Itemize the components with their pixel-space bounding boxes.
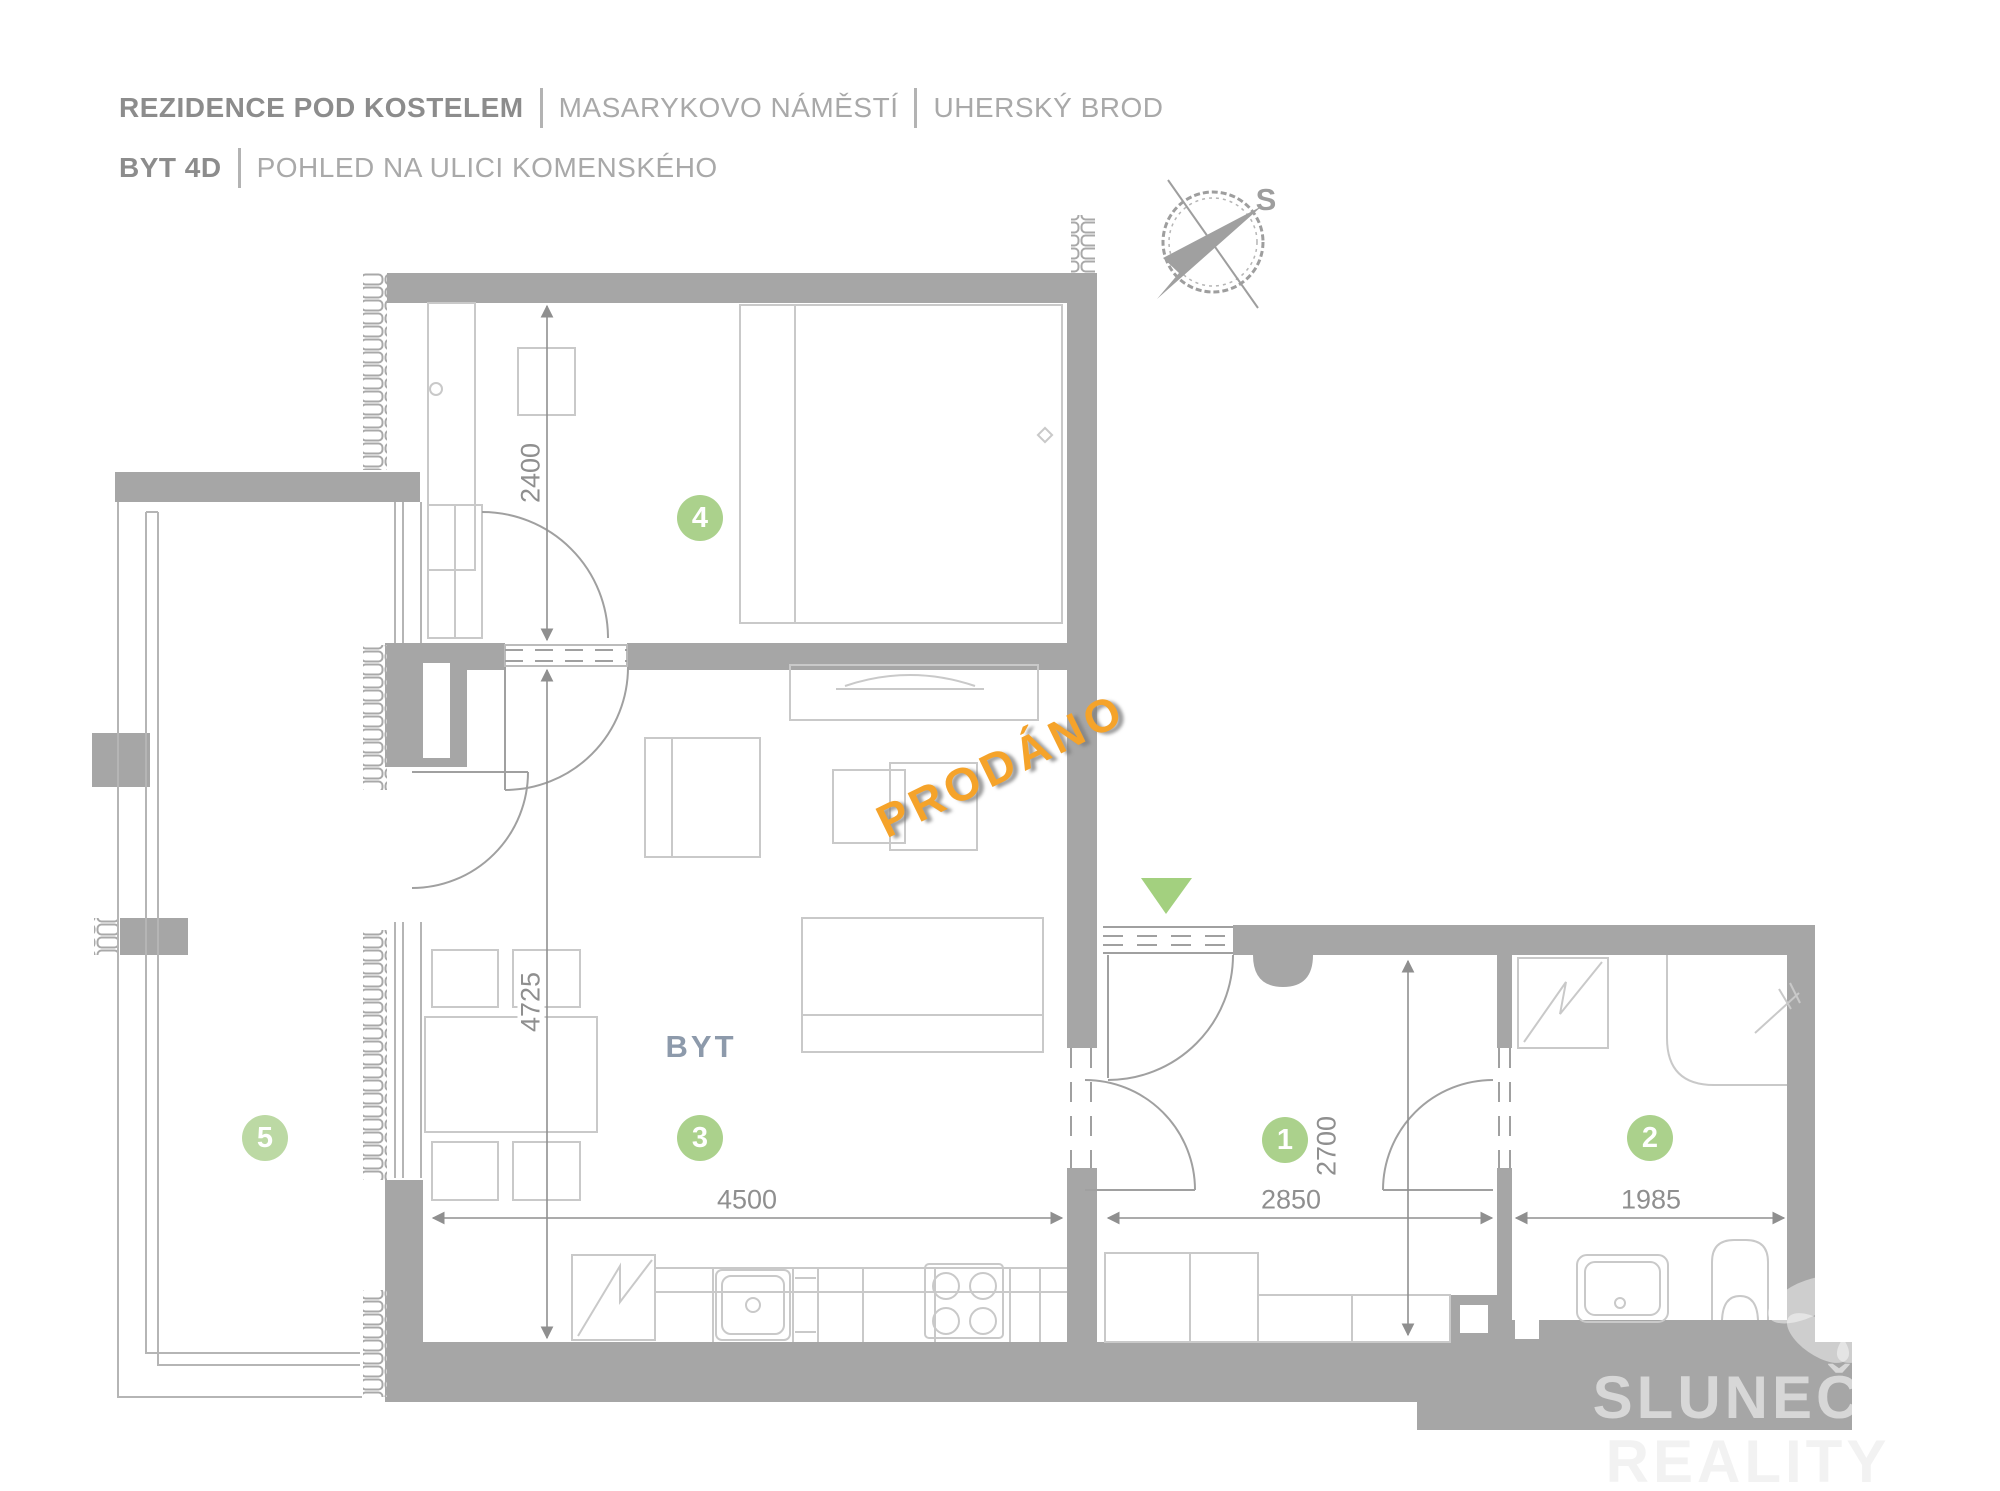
entrance-marker-icon [1141, 878, 1192, 914]
room-badge-4: 4 [677, 495, 723, 541]
floor-plan-page: REZIDENCE POD KOSTELEM MASARYKOVO NÁMĚST… [0, 0, 2000, 1491]
dimension-label-1985: 1985 [1617, 1187, 1685, 1214]
compass-north-label: S [1256, 182, 1277, 218]
apartment-label: BYT [666, 1029, 737, 1065]
dimension-label-2400: 2400 [518, 439, 545, 507]
compass-icon [1157, 180, 1263, 308]
furniture-group [425, 303, 1800, 1342]
room-badge-1: 1 [1262, 1117, 1308, 1163]
room-badge-2: 2 [1627, 1115, 1673, 1161]
dimension-label-4725: 4725 [518, 968, 545, 1036]
room-badge-5: 5 [242, 1115, 288, 1161]
room-badge-3: 3 [677, 1115, 723, 1161]
walls-group [92, 273, 1852, 1430]
dimension-label-2700: 2700 [1314, 1112, 1341, 1180]
watermark-text-line2: REALITY [1606, 1432, 1891, 1491]
dimension-label-4500: 4500 [713, 1187, 781, 1214]
dimension-lines-group [433, 306, 1784, 1338]
watermark-text-line1: SLUNEČNÍ [1593, 1368, 1932, 1428]
window-glazing [395, 502, 421, 1178]
dimension-label-2850: 2850 [1257, 1187, 1325, 1214]
